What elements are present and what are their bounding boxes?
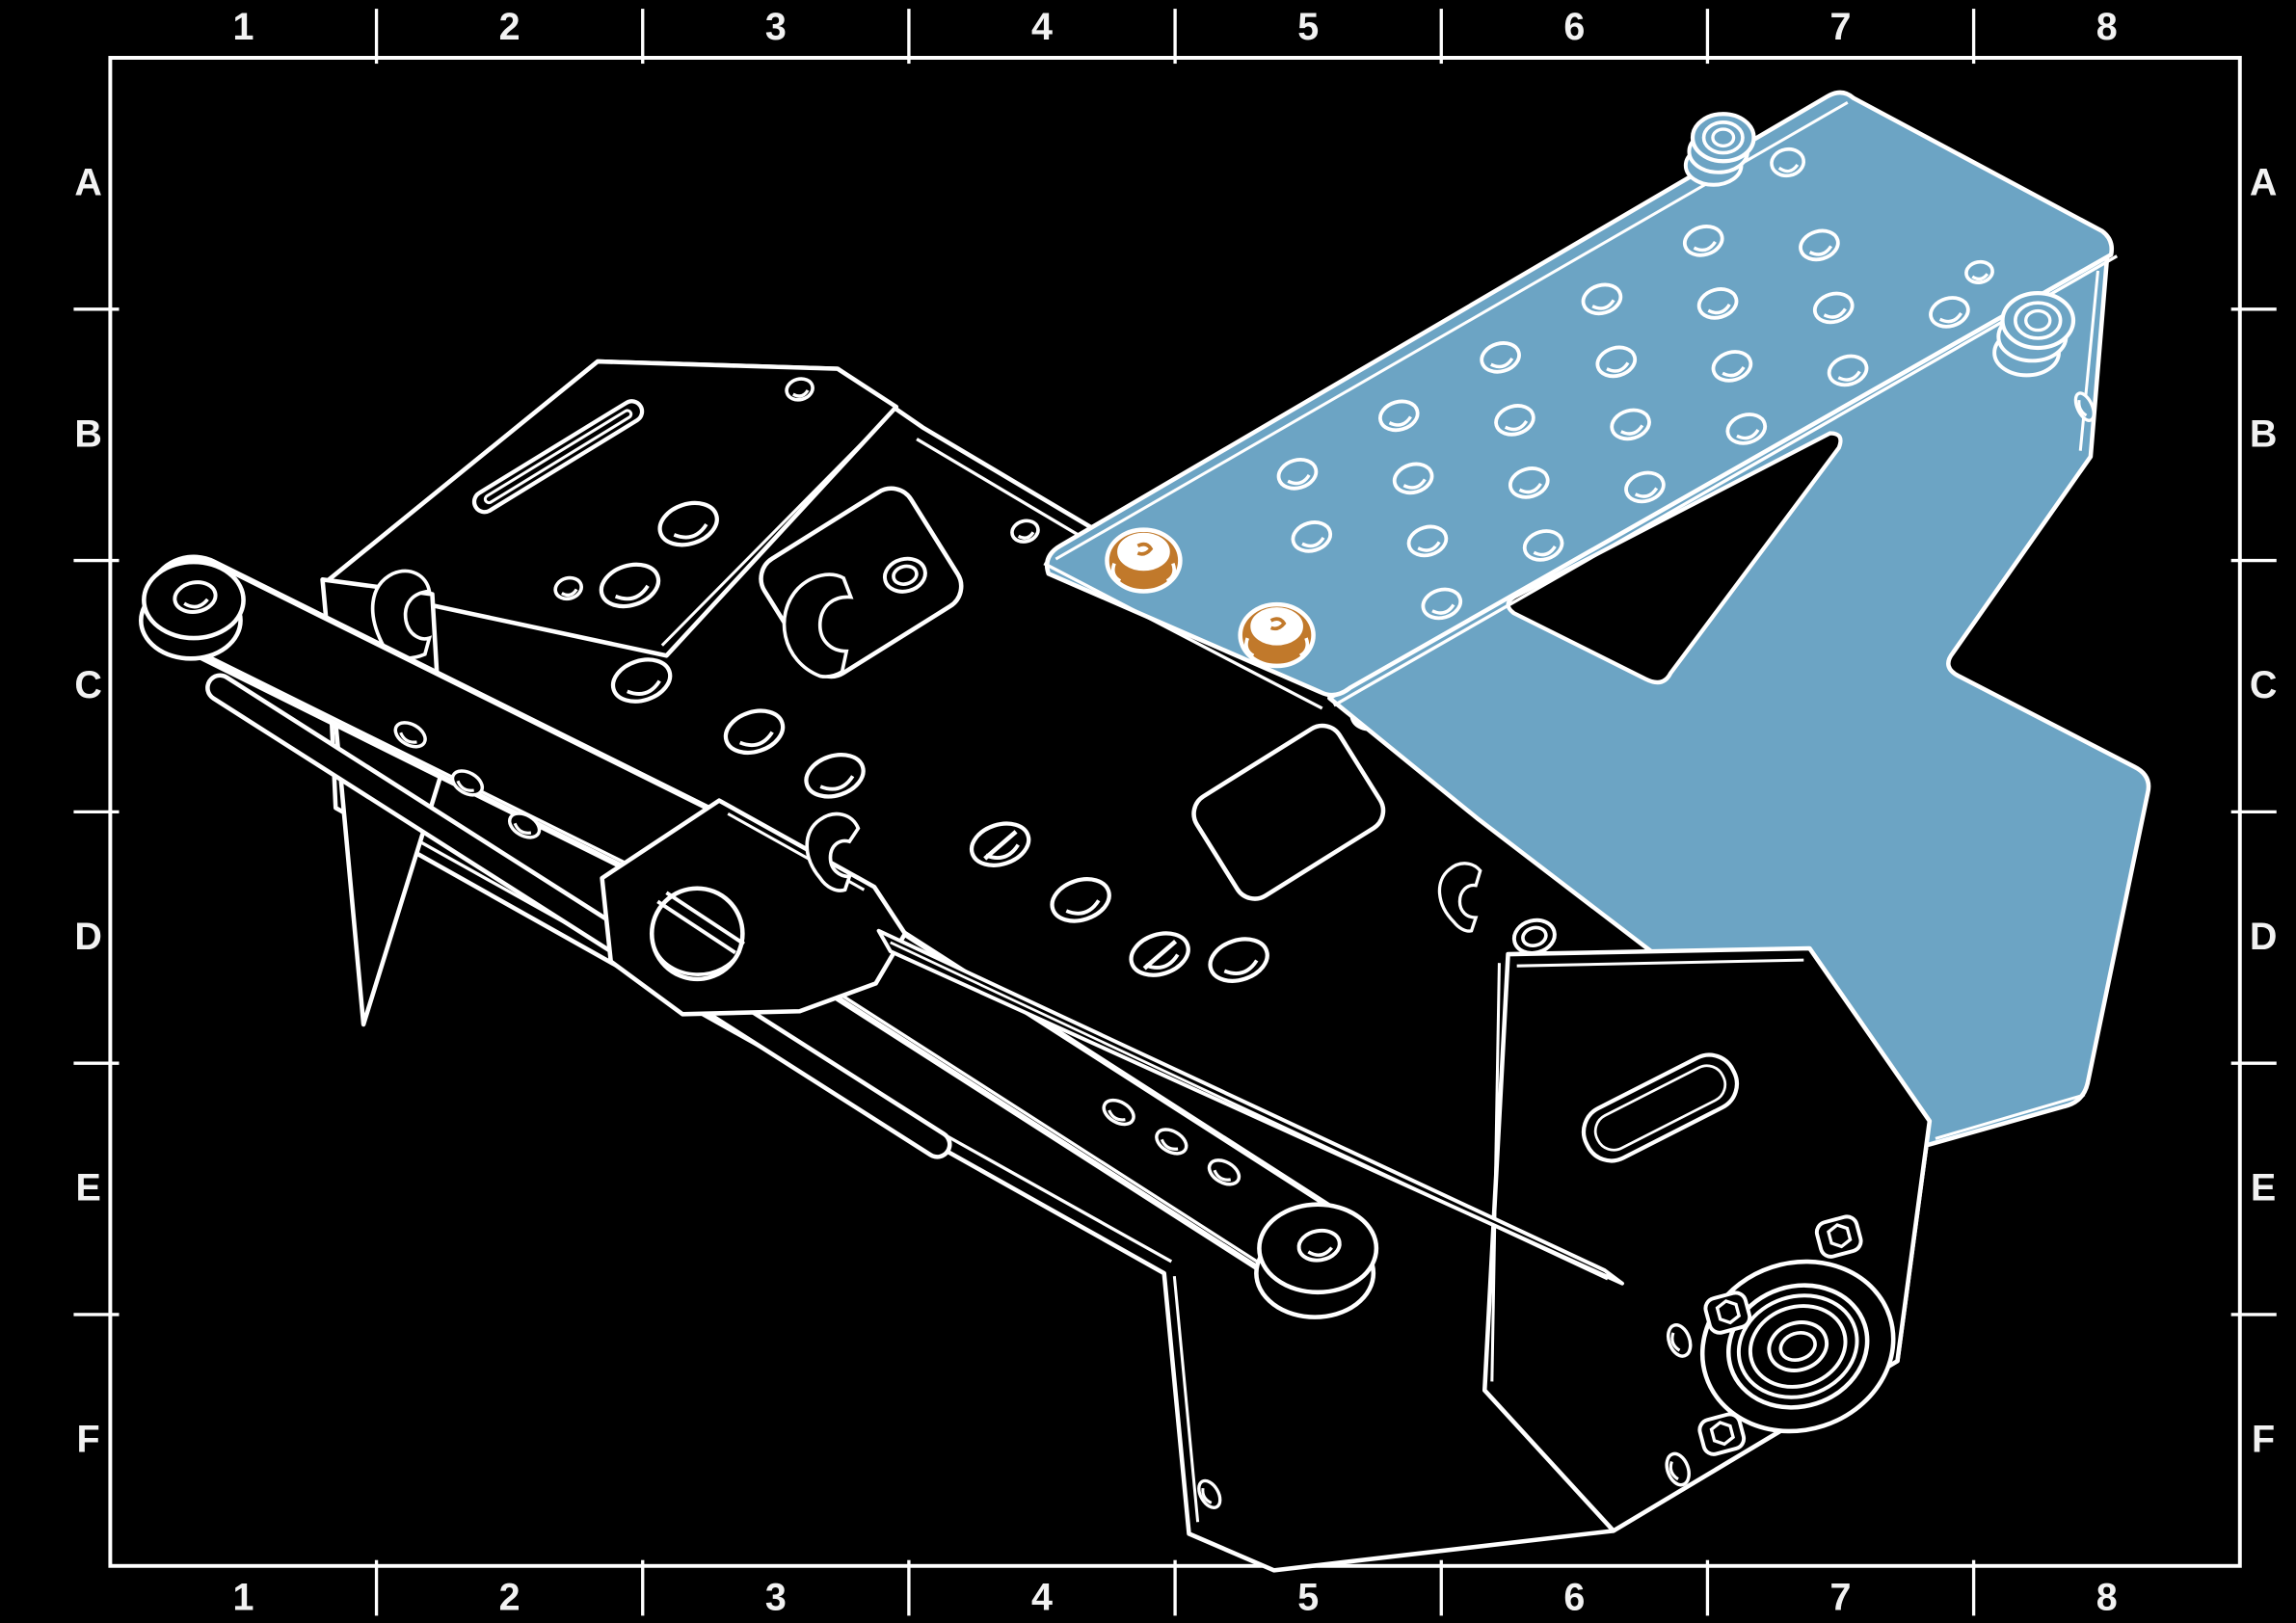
grid-row-label: C [74,664,102,706]
grid-column-label: 6 [1563,1576,1585,1618]
grid-column-label: 4 [1031,1576,1053,1618]
grid-row-label: D [2250,916,2278,958]
grid-row-label: E [75,1167,100,1210]
grid-column-label: 4 [1031,6,1053,48]
grid-column-label: 5 [1297,6,1319,48]
grid-row-label: F [77,1419,100,1461]
grid-column-label: 6 [1563,6,1585,48]
button-head-screw [1107,530,1180,592]
grid-column-label: 1 [233,6,254,48]
grid-column-label: 7 [1830,1576,1852,1618]
grid-row-label: F [2252,1419,2275,1461]
grid-column-label: 3 [765,6,787,48]
grid-row-label: E [2251,1167,2276,1210]
grid-column-label: 8 [2096,6,2118,48]
grid-row-label: A [2250,162,2278,204]
grid-row-label: B [74,412,102,455]
grid-column-label: 2 [499,1576,521,1618]
grid-column-label: 1 [233,1576,254,1618]
grid-column-label: 5 [1297,1576,1319,1618]
button-head-screw [1241,604,1314,666]
grid-row-label: D [74,916,102,958]
grid-row-label: B [2250,412,2278,455]
grid-row-label: A [74,162,102,204]
grid-column-label: 2 [499,6,521,48]
technical-drawing: 1122334455667788AABBCCDDEEFF [0,0,2296,1623]
drawing-canvas: 1122334455667788AABBCCDDEEFF [0,0,2296,1623]
grid-row-label: C [2250,664,2278,706]
bearing-housing [1484,948,1930,1530]
grid-column-label: 3 [765,1576,787,1618]
grid-column-label: 7 [1830,6,1852,48]
grid-column-label: 8 [2096,1576,2118,1618]
